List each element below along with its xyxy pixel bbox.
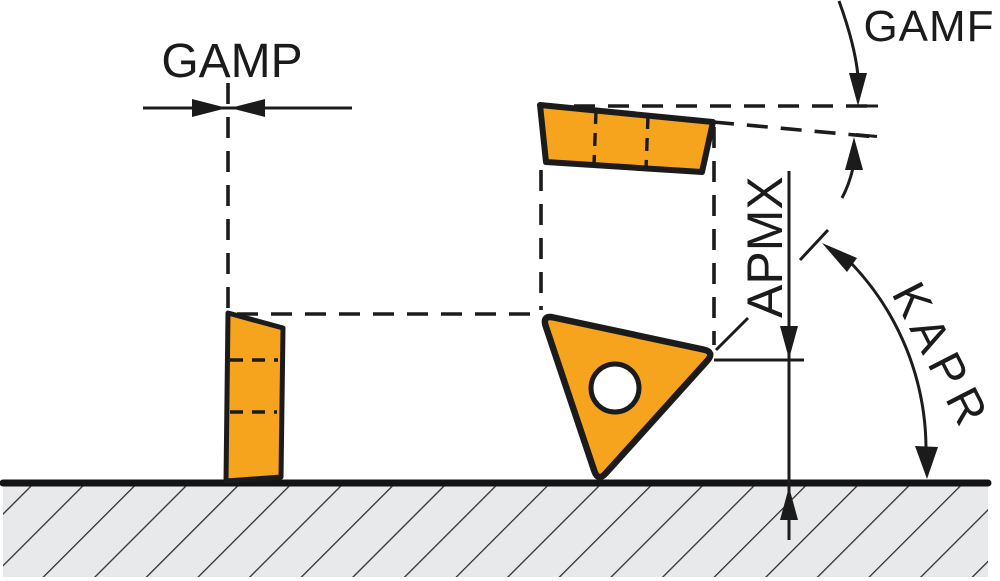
insert-screw-hole	[591, 364, 639, 412]
apmx-leader-segment	[716, 318, 748, 350]
hatch-pattern	[3, 486, 988, 577]
gamp-dimension	[143, 99, 352, 117]
gamf-arrow-up	[845, 137, 863, 170]
insert-side-view-body	[226, 313, 283, 481]
kapr-arrow-lower	[915, 446, 938, 479]
apmx-label: APMX	[737, 176, 793, 318]
gamf-leader-arc	[839, 1, 858, 76]
gamf-label: GAMF	[863, 2, 994, 51]
gamf-arrow-down	[849, 73, 867, 106]
tool-geometry-diagram: GAMP GAMF APMX KAPR	[0, 0, 1000, 581]
apmx-arrow-down	[780, 326, 798, 359]
gamp-arrow-right	[230, 99, 265, 117]
gamf-tick-lower	[856, 135, 877, 137]
kapr-arrow-upper	[822, 243, 857, 272]
diagram-canvas: GAMP GAMF APMX KAPR	[0, 0, 1000, 581]
insert-side-view	[226, 313, 283, 481]
workpiece-section	[3, 486, 988, 577]
gamp-arrow-left	[192, 99, 227, 117]
gamf-arrow-tail	[842, 168, 853, 198]
insert-front-view	[545, 317, 710, 477]
insert-top-view-body	[540, 105, 713, 172]
insert-top-hidden-line-1	[594, 111, 596, 165]
gamp-label: GAMP	[161, 35, 302, 88]
kapr-label: KAPR	[882, 273, 1000, 440]
insert-top-hidden-line-2	[646, 116, 648, 169]
insert-top-view	[540, 105, 713, 172]
gamf-rake-reference-dashed	[713, 122, 877, 137]
